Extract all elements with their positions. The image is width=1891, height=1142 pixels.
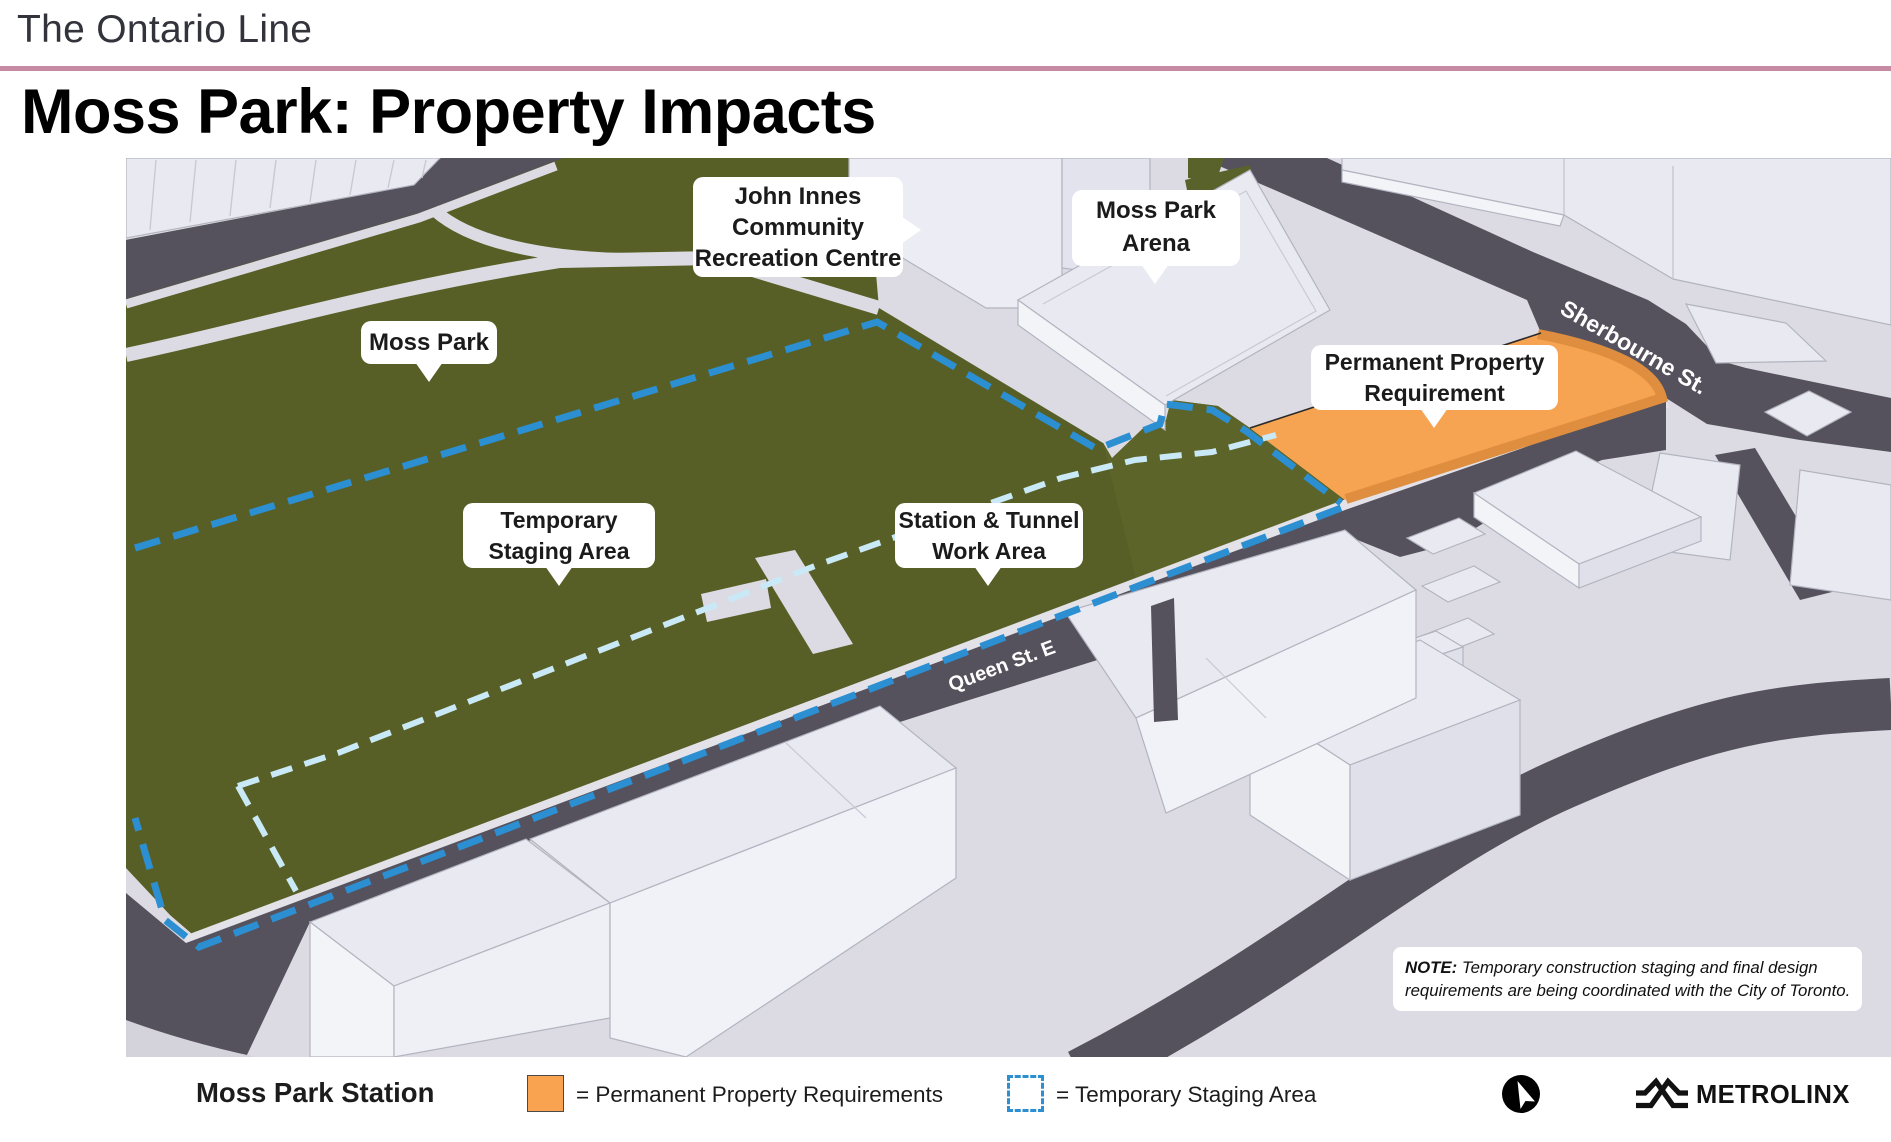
svg-text:METROLINX: METROLINX	[1696, 1081, 1850, 1109]
